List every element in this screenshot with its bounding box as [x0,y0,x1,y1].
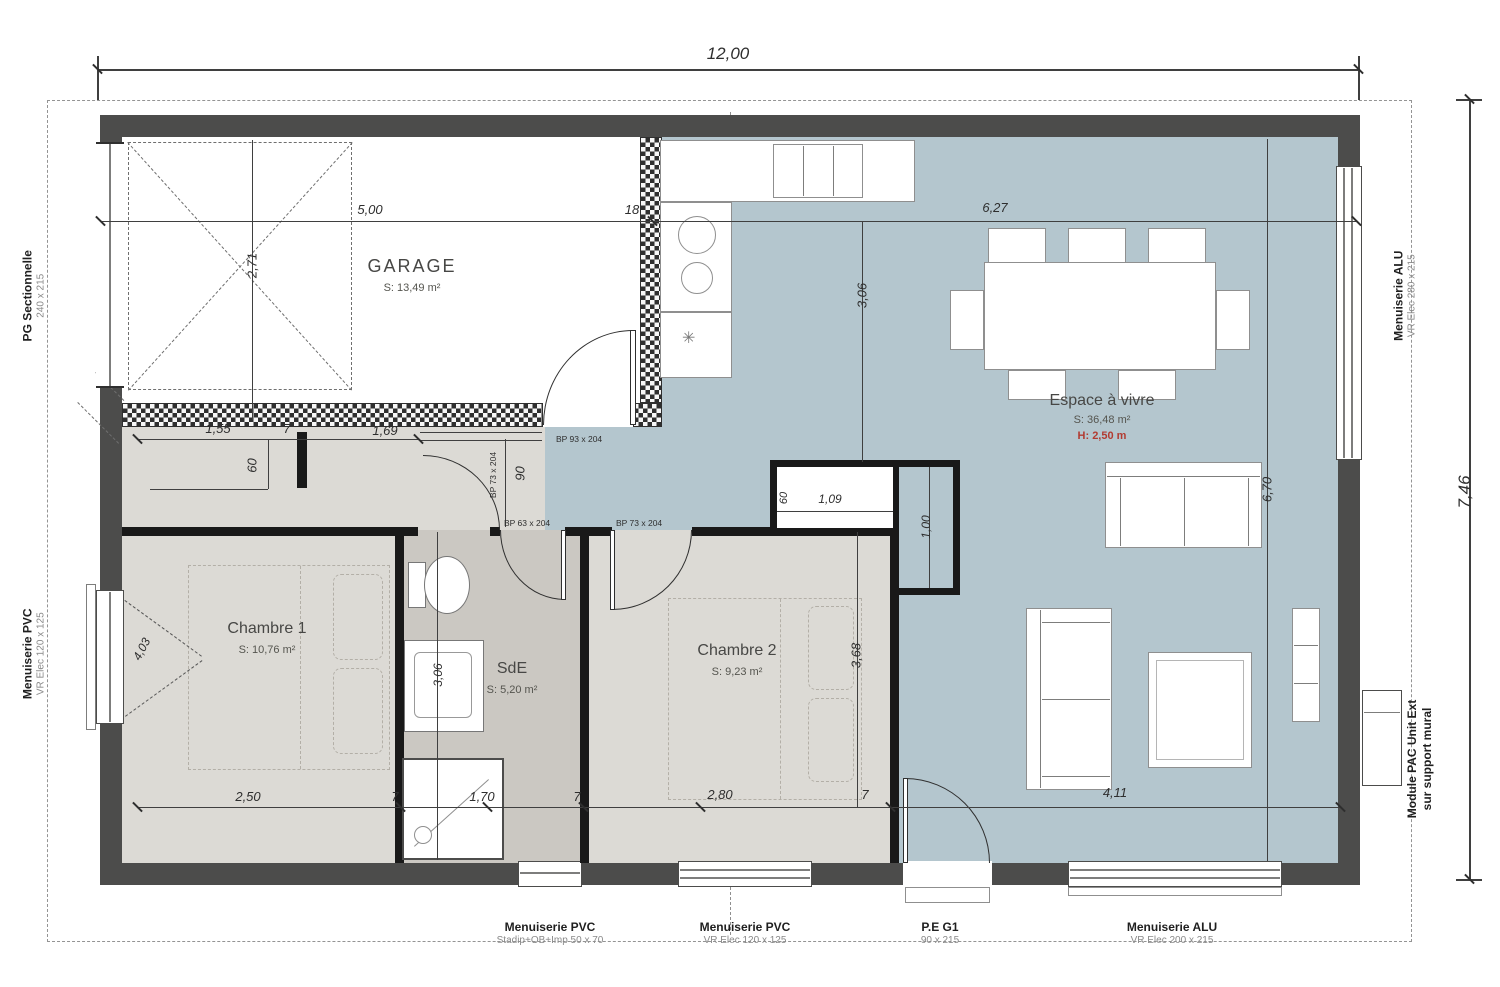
entry-door-opening [903,861,992,887]
chambre2-window-opening [678,861,812,887]
opening-left-bottom-size: VR Elec 120 x 125 [35,612,48,695]
dim-wall-thickness: 18 [612,202,652,217]
tv-unit [1292,608,1320,722]
dim-sde-d: 3,06 [431,645,445,705]
living-window-right-glass-2 [1351,168,1353,458]
dim-s2: 7 [562,789,592,804]
opening-label-bottom-4: Menuiserie ALU VR Elec 200 x 215 [1062,920,1282,948]
dim-living-b: 4,11 [1085,785,1145,800]
dim-line-hall [137,439,418,440]
dim-ch1-w: 2,50 [218,789,278,804]
opening-right-top-title: Menuiserie ALU [1391,251,1406,341]
dining-table [984,262,1216,370]
dining-chair-top-3 [1148,228,1206,264]
sofa-bottom-arm-2 [1042,776,1110,777]
chambre2-name: Chambre 2 [662,642,812,660]
kitchen-stove-divider-1 [803,146,804,196]
garage-hatched-wall-corner [633,403,662,427]
dim-placard-h: 1,00 [919,497,933,557]
garage-hatched-wall-right [640,137,662,403]
dining-chair-top-1 [988,228,1046,264]
opening-left-top-size: 240 x 215 [35,274,48,318]
living-window-bottom-sill [1068,887,1282,896]
dim-hall-c: 1,69 [355,423,415,438]
dim-overall-width: 12,00 [678,44,778,64]
garage-sectional-door-panel [109,144,111,386]
opening-bottom-3-size: 90 x 215 [921,935,959,948]
chambre1-door-rail-2 [420,440,542,441]
opening-label-left-bottom: Menuiserie PVC VR Elec 120 x 125 [20,564,48,744]
dining-chair-left [950,290,984,350]
snowflake-icon: ✳ [682,328,695,348]
dim-living-d: 6,70 [1260,460,1275,520]
wc-bowl [424,556,470,614]
chambre2-window-glass-2 [680,877,810,879]
placard-wall-right [953,460,960,595]
sofa-right-cushion [1184,478,1185,546]
dim-overall-height: 7,46 [1455,447,1475,537]
sofa-bottom-arm-1 [1042,622,1110,623]
dim-garage-depth: 2,71 [245,236,260,296]
dim-line-bottom [137,807,1340,808]
sde-door-leaf [561,530,566,600]
sde-area: S: 5,20 m² [462,684,562,696]
dim-line-hall-h2 [150,489,268,490]
opening-bottom-4-size: VR Elec 200 x 215 [1131,935,1214,948]
opening-right-top-size: VR Elec 280 x 215 [1406,254,1419,337]
opening-left-bottom-title: Menuiserie PVC [20,608,35,699]
wall-ch2-living [890,527,899,863]
espace-area: S: 36,48 m² [1002,414,1202,426]
opening-right-bottom-size: sur support mural [1420,708,1435,811]
door-label-bp73-h: BP 73 x 204 [616,518,662,528]
dim-s1: 7 [380,789,410,804]
living-window-right-glass-1 [1343,168,1345,458]
opening-bottom-2-title: Menuiserie PVC [700,920,791,935]
sofa-bottom-back [1040,610,1041,788]
entry-step [905,887,990,903]
chambre2-pillow-1 [808,606,854,690]
opening-bottom-3-title: P.E G1 [921,920,958,935]
chambre2-window-glass-1 [680,869,810,871]
pac-module [1362,690,1402,786]
dining-chair-top-2 [1068,228,1126,264]
dim-door-w: 90 [513,454,528,494]
garage-hatched-wall-bottom [122,403,543,427]
chambre1-window-sill [86,584,96,730]
garage-name: GARAGE [342,256,482,277]
kitchen-sink-bowl-2 [681,262,713,294]
chambre2-pillow-2 [808,698,854,782]
chambre2-door-leaf [610,530,615,610]
opening-right-bottom-title: Module PAC Unit Ext [1405,700,1420,818]
dim-ch2-d: 3,68 [849,626,864,686]
opening-label-bottom-3: P.E G1 90 x 215 [830,920,1050,948]
dim-garage-width: 5,00 [330,202,410,217]
dim-sde-w: 1,70 [452,789,512,804]
sde-name: SdE [472,660,552,678]
living-window-right-opening [1336,166,1362,460]
dim-line-garage [100,221,1356,222]
placard-wall-bottom [893,588,960,595]
opening-label-left-top: PG Sectionnelle 240 x 215 [20,206,48,386]
garage-door-leaf [630,330,636,425]
dim-hall-d: 60 [245,446,260,486]
dim-line-top [97,69,1360,71]
dim-hall-a: 1,55 [188,421,248,436]
opening-left-top-title: PG Sectionnelle [20,250,35,341]
kitchen-stove [773,144,863,198]
placard-wall-top [770,460,960,467]
pac-module-line [1364,712,1400,713]
sofa-bottom-cushion [1042,699,1110,700]
sde-window-glass [520,872,580,874]
espace-height: H: 2,50 m [1002,430,1202,442]
chambre2-area: S: 9,23 m² [662,666,812,678]
chambre2-blanket-line [780,599,781,799]
living-window-bottom-glass-2 [1070,877,1280,879]
dim-living-width: 6,27 [955,200,1035,215]
tv-unit-divider-2 [1294,683,1318,684]
dim-kitchen-depth: 3,06 [855,266,870,326]
door-label-bp63: BP 63 x 204 [504,518,550,528]
placard-wall-left [770,460,777,530]
living-window-bottom-glass-1 [1070,869,1280,871]
sofa-right-arm-1 [1120,478,1121,546]
dim-line-door90 [505,439,506,527]
opening-label-bottom-2: Menuiserie PVC VR Elec 120 x 125 [635,920,855,948]
dim-line-top-end-r [1358,56,1360,100]
chambre1-door-rail-1 [420,432,542,433]
dim-s3: 7 [850,787,880,802]
wall-hall-stub [297,432,307,488]
dim-line-placard [777,511,893,512]
opening-label-bottom-1: Menuiserie PVC Stadip+OB+Imp 50 x 70 [440,920,660,948]
wall-bedrooms-top-3 [692,527,899,536]
opening-label-right-top: Menuiserie ALU VR Elec 280 x 215 [1391,206,1419,386]
chambre1-name: Chambre 1 [192,620,342,638]
tv-unit-divider-1 [1294,645,1318,646]
opening-bottom-1-size: Stadip+OB+Imp 50 x 70 [497,935,604,948]
dim-hall-b: 7 [272,421,302,436]
opening-label-right-bottom: Module PAC Unit Ext sur support mural [1405,659,1435,859]
living-window-bottom-opening [1068,861,1282,887]
kitchen-unit-lower [660,312,732,378]
opening-bottom-2-size: VR Elec 120 x 125 [704,935,787,948]
dim-placard-w: 1,09 [800,492,860,506]
entry-door-leaf [903,778,908,863]
chambre1-blanket-line [300,566,301,769]
floor-plan-canvas: ✳ 12, [0,0,1500,987]
kitchen-stove-divider-2 [833,146,834,196]
dim-line-top-end-l [97,56,99,100]
opening-bottom-4-title: Menuiserie ALU [1127,920,1217,935]
wall-bedrooms-top-1 [122,527,418,536]
garage-area: S: 13,49 m² [342,282,482,294]
sde-window-opening [518,861,582,887]
chambre1-area: S: 10,76 m² [192,644,342,656]
dim-line-kitchen-depth [862,222,863,462]
sofa-right-arm-2 [1248,478,1249,546]
dim-line-hall-v [268,439,269,489]
chambre1-pillow-2 [333,668,383,754]
coffee-table-inner [1156,660,1244,760]
dim-placard-d: 60 [778,480,790,516]
sofa-right-back [1107,476,1260,477]
placard-wall-mid [893,460,899,530]
dining-chair-right [1216,290,1250,350]
opening-bottom-1-title: Menuiserie PVC [505,920,596,935]
door-label-bp93: BP 93 x 204 [556,434,602,444]
shower-drain [414,826,432,844]
wall-sde-ch2 [580,530,589,863]
door-label-bp73-v: BP 73 x 204 [488,430,498,520]
espace-name: Espace à vivre [1002,392,1202,410]
dim-ch2-w: 2,80 [690,787,750,802]
chambre1-window-glass [109,592,111,722]
